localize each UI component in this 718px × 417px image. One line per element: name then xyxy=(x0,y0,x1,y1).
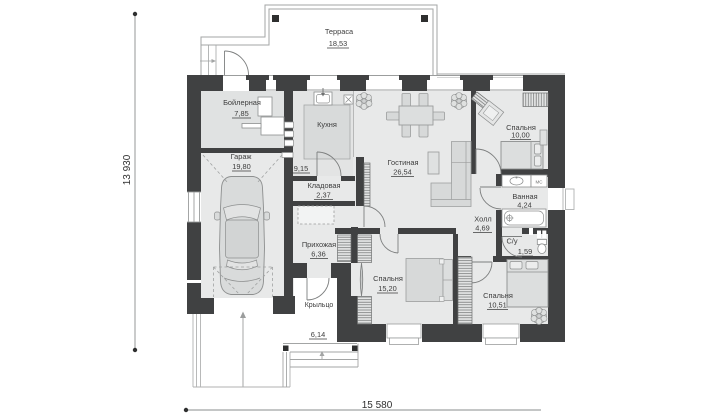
svg-text:19,80: 19,80 xyxy=(232,162,251,171)
svg-text:26,54: 26,54 xyxy=(393,168,412,177)
svg-text:10,00: 10,00 xyxy=(511,131,530,140)
svg-text:Бойлерная: Бойлерная xyxy=(223,98,261,107)
svg-text:Кухня: Кухня xyxy=(317,120,337,129)
svg-text:Терраса: Терраса xyxy=(325,27,354,36)
svg-text:Спальня: Спальня xyxy=(373,274,403,283)
svg-text:Прихожая: Прихожая xyxy=(302,240,336,249)
svg-text:6,36: 6,36 xyxy=(311,250,325,259)
svg-text:Спальня: Спальня xyxy=(483,291,513,300)
svg-text:Гостиная: Гостиная xyxy=(387,158,418,167)
svg-text:4,24: 4,24 xyxy=(517,201,531,210)
svg-text:6,14: 6,14 xyxy=(311,330,325,339)
svg-text:Крыльцо: Крыльцо xyxy=(305,302,334,309)
svg-text:15,20: 15,20 xyxy=(378,284,397,293)
svg-text:С/у: С/у xyxy=(506,237,517,246)
svg-text:МС: МС xyxy=(536,180,544,185)
svg-text:7,85: 7,85 xyxy=(234,109,248,118)
svg-text:13 930: 13 930 xyxy=(122,154,133,185)
svg-text:18,53: 18,53 xyxy=(329,39,348,48)
svg-text:15 580: 15 580 xyxy=(362,400,393,411)
svg-text:9,15: 9,15 xyxy=(294,164,308,173)
svg-text:Гараж: Гараж xyxy=(231,152,252,161)
svg-text:10,51: 10,51 xyxy=(488,301,507,310)
svg-text:1,59: 1,59 xyxy=(518,247,532,256)
svg-text:2,37: 2,37 xyxy=(316,191,330,200)
svg-text:4,69: 4,69 xyxy=(475,224,489,233)
svg-text:Кладовая: Кладовая xyxy=(307,181,340,190)
svg-text:Холл: Холл xyxy=(474,215,491,224)
